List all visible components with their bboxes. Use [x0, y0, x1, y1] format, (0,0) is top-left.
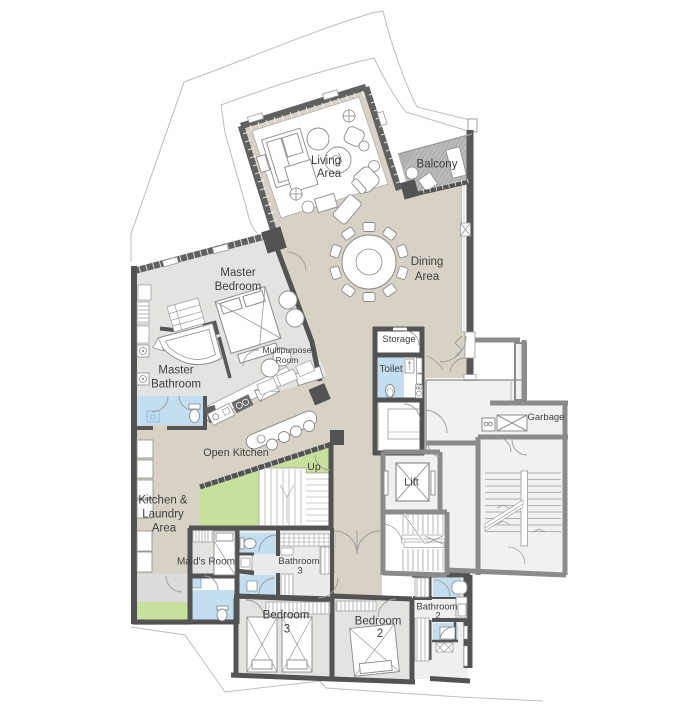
svg-text:Area: Area [415, 271, 440, 283]
svg-text:Multipurpose: Multipurpose [263, 345, 312, 355]
svg-text:Garbage: Garbage [528, 412, 565, 423]
svg-text:Bedroom: Bedroom [355, 616, 402, 628]
svg-text:Lift: Lift [404, 477, 419, 489]
svg-text:3: 3 [284, 624, 290, 636]
svg-text:Kitchen &: Kitchen & [138, 495, 188, 507]
svg-text:Dining: Dining [411, 256, 444, 268]
svg-text:Bathroom: Bathroom [151, 379, 201, 391]
svg-text:Balcony: Balcony [417, 159, 458, 171]
svg-text:Master: Master [220, 267, 255, 279]
svg-text:2: 2 [435, 611, 440, 622]
svg-text:Toilet: Toilet [379, 364, 403, 375]
svg-text:Area: Area [317, 168, 342, 180]
svg-text:Living: Living [311, 155, 341, 167]
svg-text:Storage: Storage [382, 334, 415, 345]
svg-text:2: 2 [377, 628, 383, 640]
svg-text:Area: Area [152, 523, 177, 535]
svg-text:Laundry: Laundry [142, 509, 184, 521]
svg-text:Up: Up [307, 461, 321, 473]
svg-text:Bedroom: Bedroom [263, 610, 310, 622]
svg-text:Bedroom: Bedroom [215, 281, 262, 293]
svg-text:Maid's Room: Maid's Room [177, 557, 235, 568]
svg-text:Open Kitchen: Open Kitchen [203, 447, 268, 459]
svg-text:3: 3 [297, 566, 302, 577]
svg-text:Master: Master [158, 365, 193, 377]
svg-text:Room: Room [276, 355, 299, 365]
